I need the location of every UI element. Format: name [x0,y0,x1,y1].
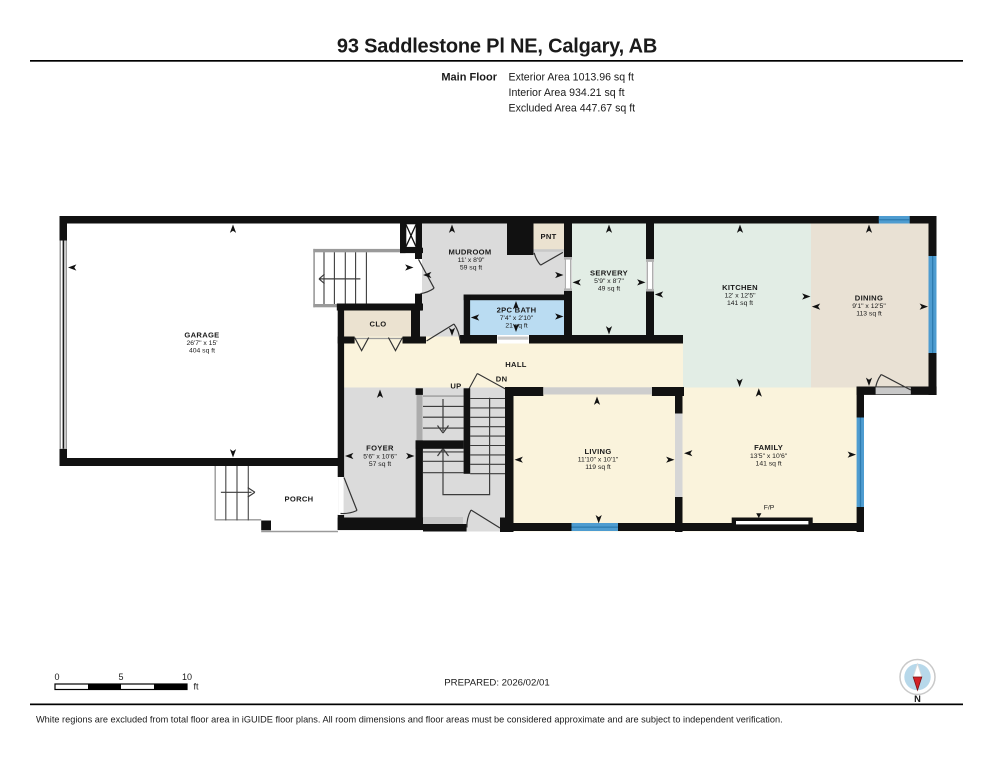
svg-text:119 sq ft: 119 sq ft [585,464,611,471]
svg-text:ft: ft [194,682,200,692]
svg-text:LIVING: LIVING [584,447,611,456]
svg-text:DN: DN [496,375,508,384]
svg-text:CLO: CLO [370,320,387,329]
svg-text:10: 10 [182,672,192,682]
svg-text:PORCH: PORCH [285,495,314,504]
svg-text:7'4" x 2'10": 7'4" x 2'10" [500,315,534,322]
svg-text:0: 0 [54,672,59,682]
svg-text:2PC BATH: 2PC BATH [497,305,537,314]
svg-text:HALL: HALL [505,360,527,369]
svg-text:12' x 12'5": 12' x 12'5" [724,293,756,300]
svg-text:UP: UP [450,381,461,390]
svg-text:MUDROOM: MUDROOM [448,248,491,257]
svg-text:5'9" x 8'7": 5'9" x 8'7" [594,278,624,285]
svg-text:49 sq ft: 49 sq ft [598,286,620,293]
svg-text:Interior Area 934.21 sq ft: Interior Area 934.21 sq ft [509,87,625,99]
svg-text:FAMILY: FAMILY [754,443,783,452]
svg-text:26'7" x 15': 26'7" x 15' [186,340,217,347]
svg-text:11'10" x 10'1": 11'10" x 10'1" [578,457,619,464]
svg-text:White regions are excluded fro: White regions are excluded from total fl… [36,715,783,725]
svg-text:Excluded Area 447.67 sq ft: Excluded Area 447.67 sq ft [509,103,636,115]
svg-text:PNT: PNT [540,232,556,241]
svg-text:DINING: DINING [855,294,883,303]
svg-text:SERVERY: SERVERY [590,269,628,278]
svg-text:Main Floor: Main Floor [441,72,497,84]
svg-text:404 sq ft: 404 sq ft [189,348,215,355]
svg-text:93 Saddlestone Pl NE, Calgary,: 93 Saddlestone Pl NE, Calgary, AB [337,36,657,58]
svg-text:141 sq ft: 141 sq ft [727,300,753,307]
svg-text:F/P: F/P [764,505,775,512]
svg-text:5: 5 [118,672,123,682]
svg-text:Exterior Area 1013.96 sq ft: Exterior Area 1013.96 sq ft [509,72,634,84]
svg-text:PREPARED: 2026/02/01: PREPARED: 2026/02/01 [444,678,549,689]
svg-text:5'6" x 10'6": 5'6" x 10'6" [363,453,397,460]
svg-text:113 sq ft: 113 sq ft [856,311,882,318]
svg-text:13'5" x 10'6": 13'5" x 10'6" [750,453,788,460]
svg-text:GARAGE: GARAGE [184,330,219,339]
svg-text:KITCHEN: KITCHEN [722,283,758,292]
svg-text:59 sq ft: 59 sq ft [460,265,482,272]
svg-text:9'1" x 12'5": 9'1" x 12'5" [852,303,886,310]
svg-text:FOYER: FOYER [366,444,394,453]
svg-text:57 sq ft: 57 sq ft [369,461,391,468]
svg-text:21 sq ft: 21 sq ft [505,322,527,329]
svg-text:N: N [914,694,921,704]
svg-text:141 sq ft: 141 sq ft [756,460,782,467]
svg-text:11' x 8'9": 11' x 8'9" [458,257,485,264]
